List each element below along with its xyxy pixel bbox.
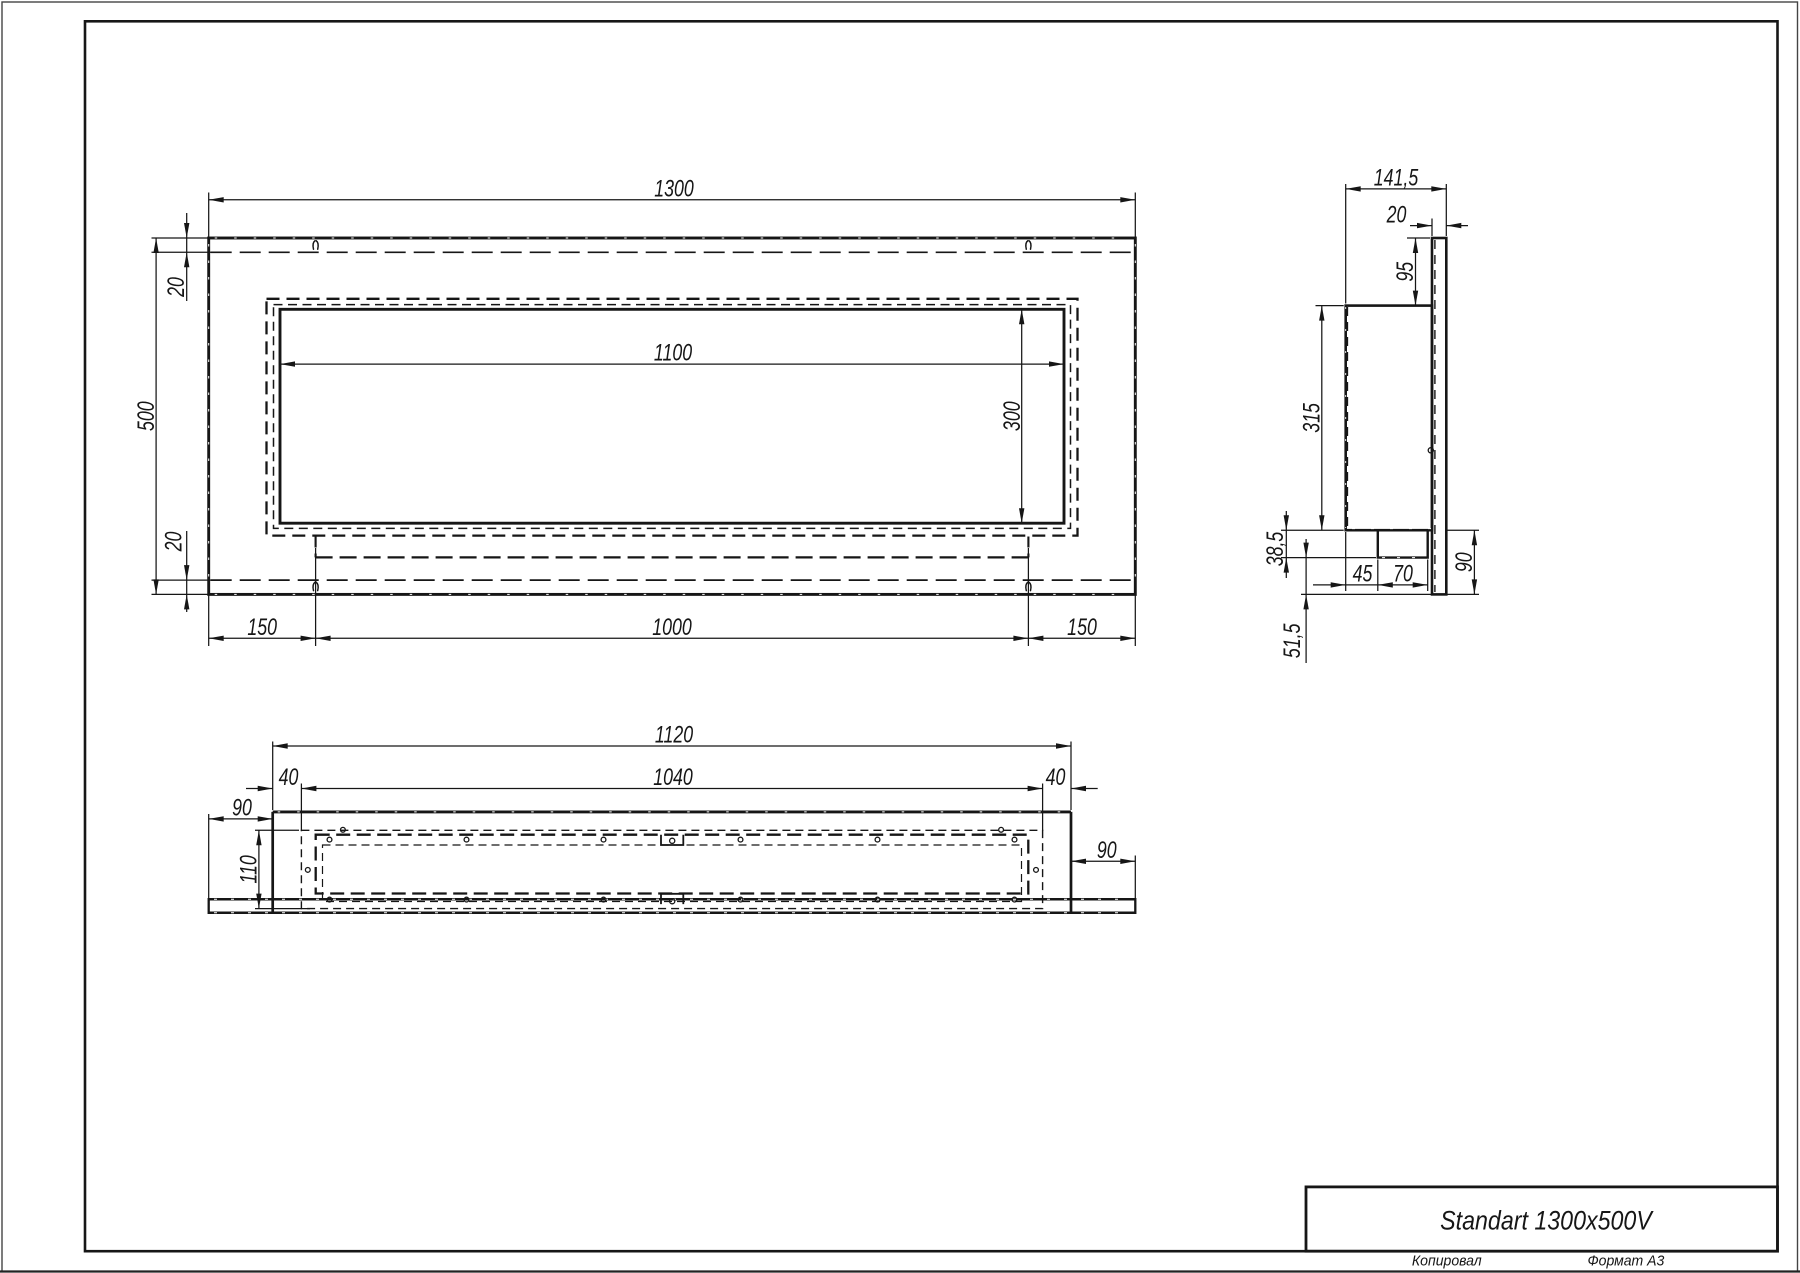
- svg-text:Standart 1300x500V: Standart 1300x500V: [1440, 1206, 1654, 1236]
- svg-text:90: 90: [232, 795, 252, 821]
- svg-text:90: 90: [1451, 552, 1477, 572]
- svg-text:1040: 1040: [653, 765, 693, 791]
- svg-text:315: 315: [1299, 403, 1325, 433]
- svg-text:70: 70: [1393, 561, 1413, 587]
- svg-text:20: 20: [164, 277, 190, 298]
- svg-text:Копировал: Копировал: [1412, 1253, 1482, 1269]
- svg-text:150: 150: [1067, 614, 1097, 640]
- svg-text:141,5: 141,5: [1374, 165, 1419, 191]
- svg-text:51,5: 51,5: [1279, 623, 1305, 658]
- svg-text:38,5: 38,5: [1262, 532, 1288, 567]
- svg-text:1120: 1120: [655, 722, 693, 748]
- svg-text:90: 90: [1097, 837, 1117, 863]
- svg-text:500: 500: [133, 401, 159, 431]
- svg-text:20: 20: [161, 531, 187, 552]
- svg-text:Формат А3: Формат А3: [1587, 1253, 1664, 1269]
- svg-text:20: 20: [1386, 202, 1407, 228]
- svg-text:95: 95: [1392, 262, 1418, 282]
- svg-text:300: 300: [1000, 401, 1026, 431]
- svg-text:1100: 1100: [654, 340, 692, 366]
- svg-text:40: 40: [279, 765, 299, 791]
- svg-text:1300: 1300: [654, 176, 694, 202]
- svg-text:110: 110: [236, 855, 262, 884]
- svg-text:1000: 1000: [652, 614, 692, 640]
- svg-text:45: 45: [1353, 561, 1373, 587]
- svg-text:40: 40: [1046, 765, 1066, 791]
- svg-text:150: 150: [247, 614, 277, 640]
